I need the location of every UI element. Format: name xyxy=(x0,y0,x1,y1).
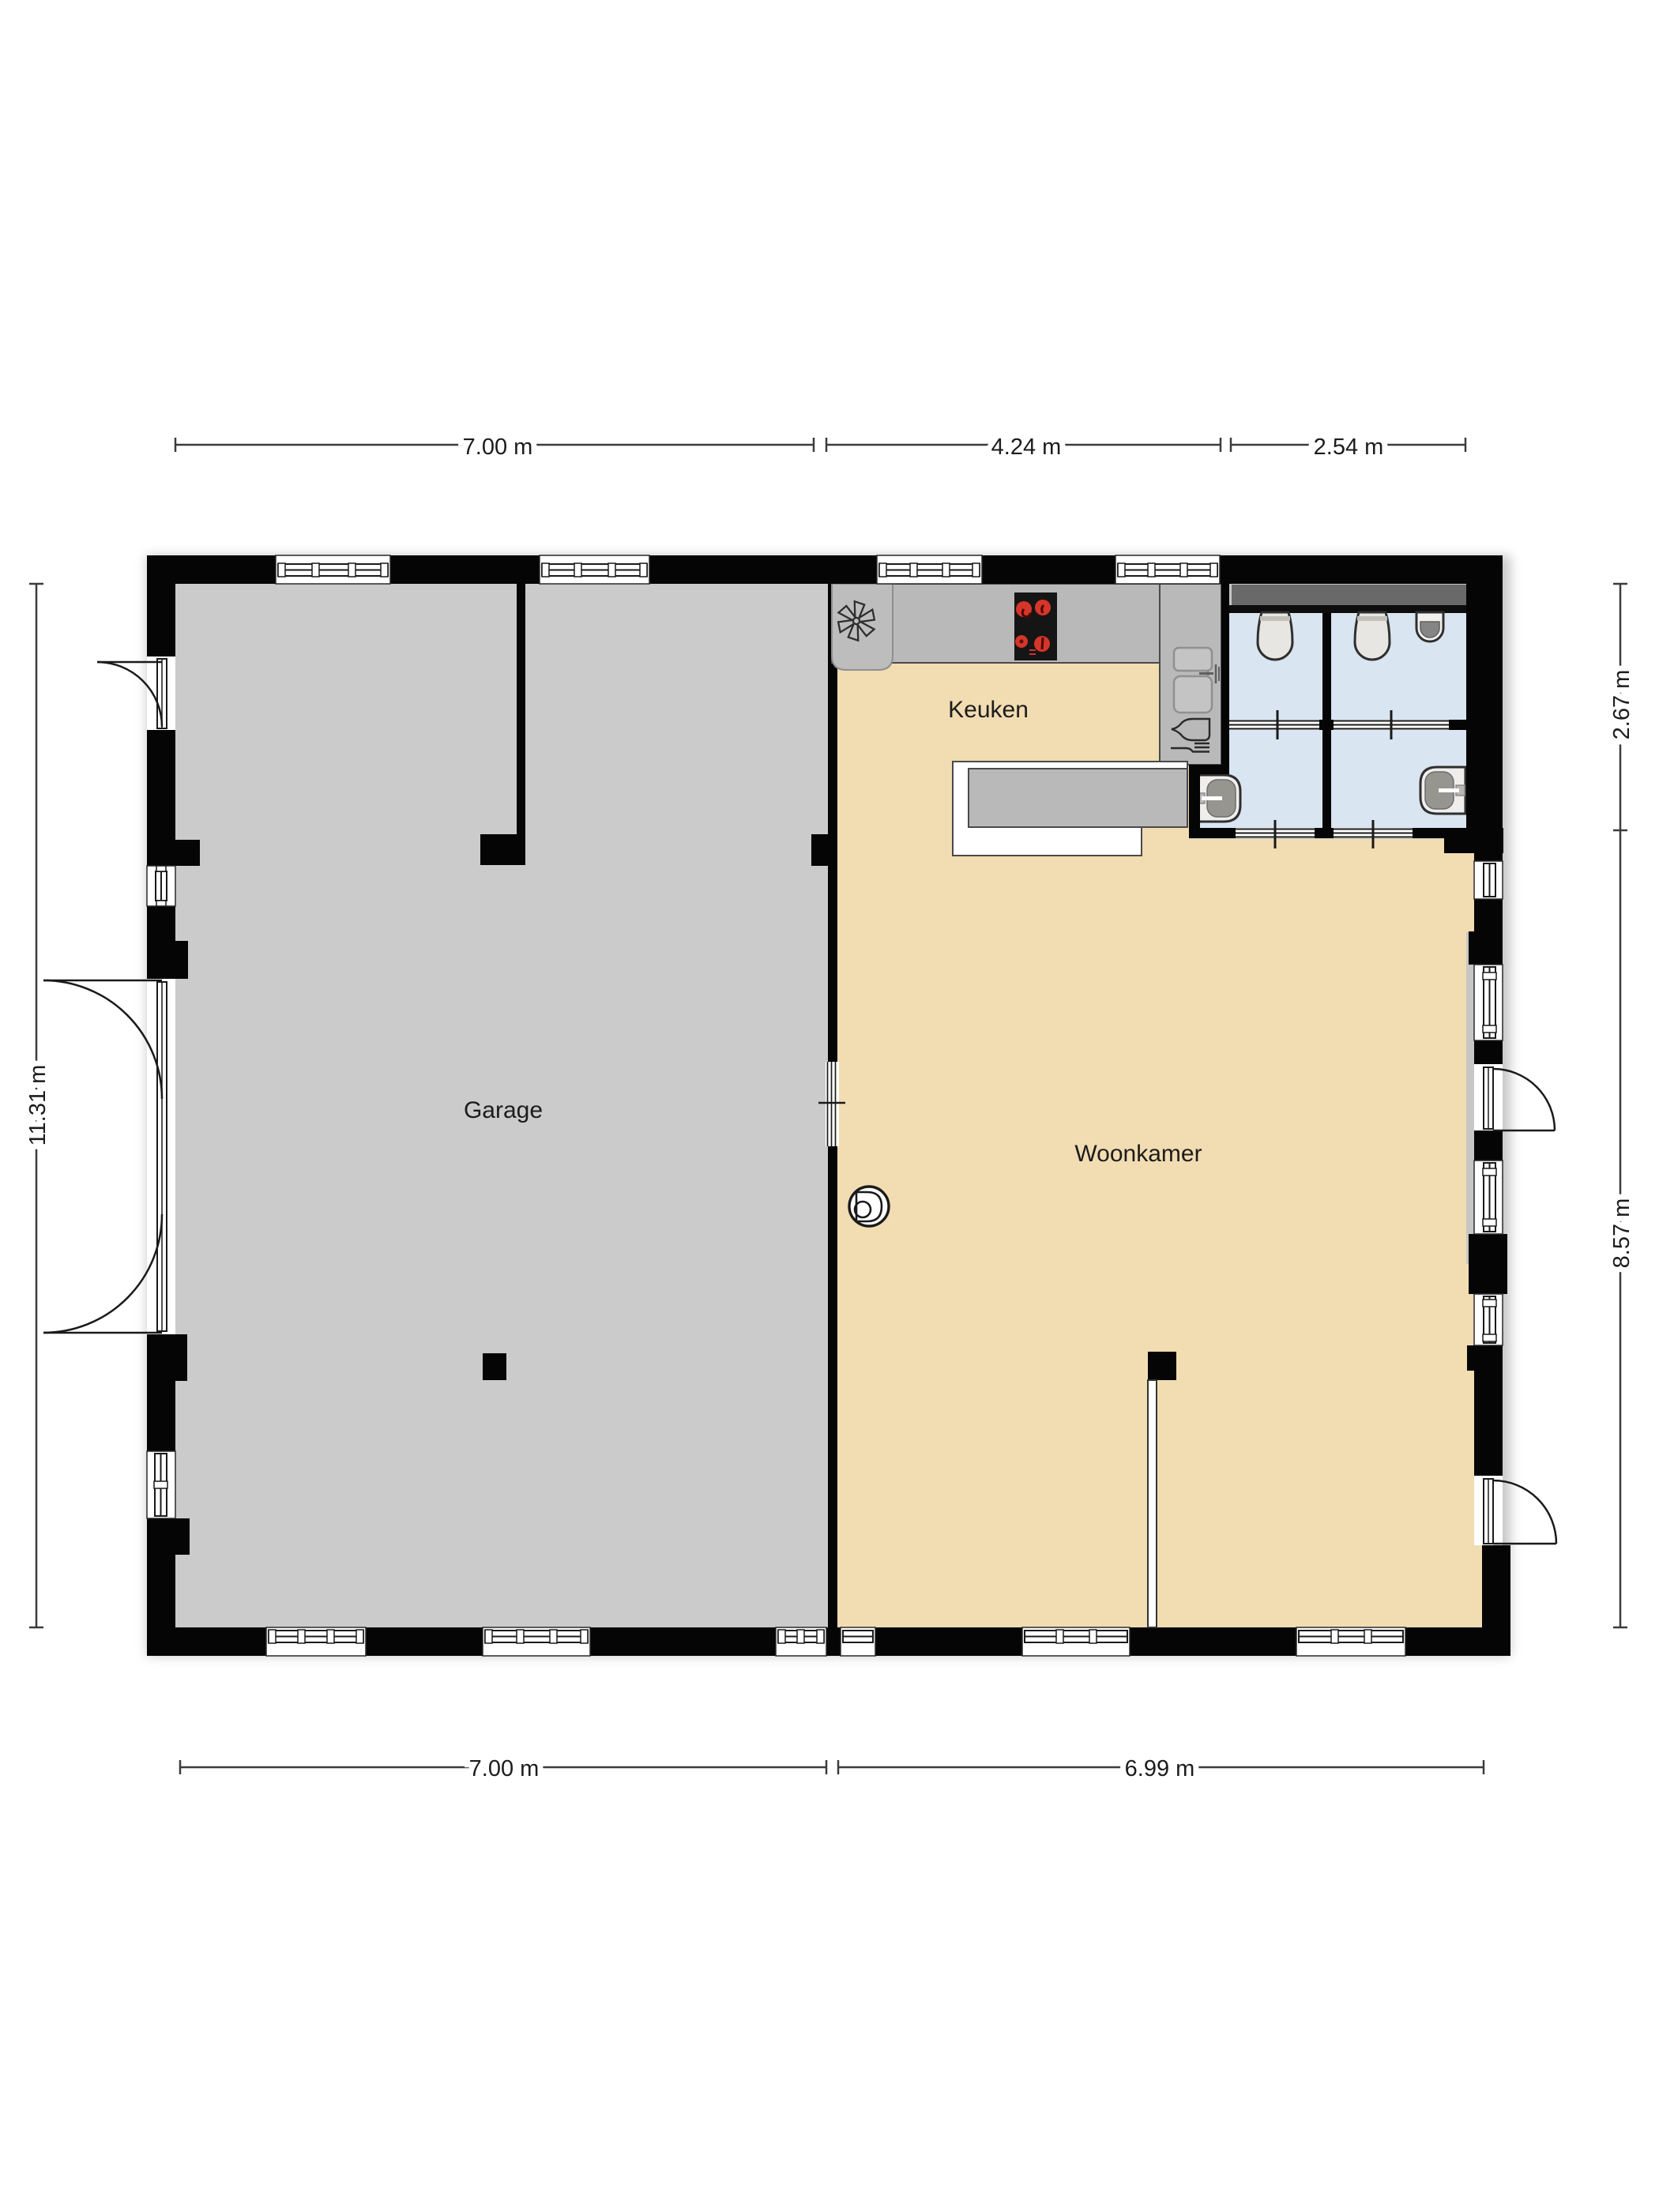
svg-text:2.67 m: 2.67 m xyxy=(1609,670,1635,740)
svg-text:7.00 m: 7.00 m xyxy=(463,434,533,460)
svg-text:2.54 m: 2.54 m xyxy=(1314,434,1384,460)
svg-text:6.99 m: 6.99 m xyxy=(1125,1756,1195,1781)
svg-text:11.31 m: 11.31 m xyxy=(25,1065,51,1146)
svg-text:Keuken: Keuken xyxy=(948,697,1029,723)
svg-text:Garage: Garage xyxy=(464,1097,543,1123)
svg-text:4.24 m: 4.24 m xyxy=(991,434,1062,460)
svg-text:Woonkamer: Woonkamer xyxy=(1074,1141,1202,1167)
svg-text:8.57 m: 8.57 m xyxy=(1609,1198,1635,1269)
svg-text:7.00 m: 7.00 m xyxy=(469,1756,540,1781)
